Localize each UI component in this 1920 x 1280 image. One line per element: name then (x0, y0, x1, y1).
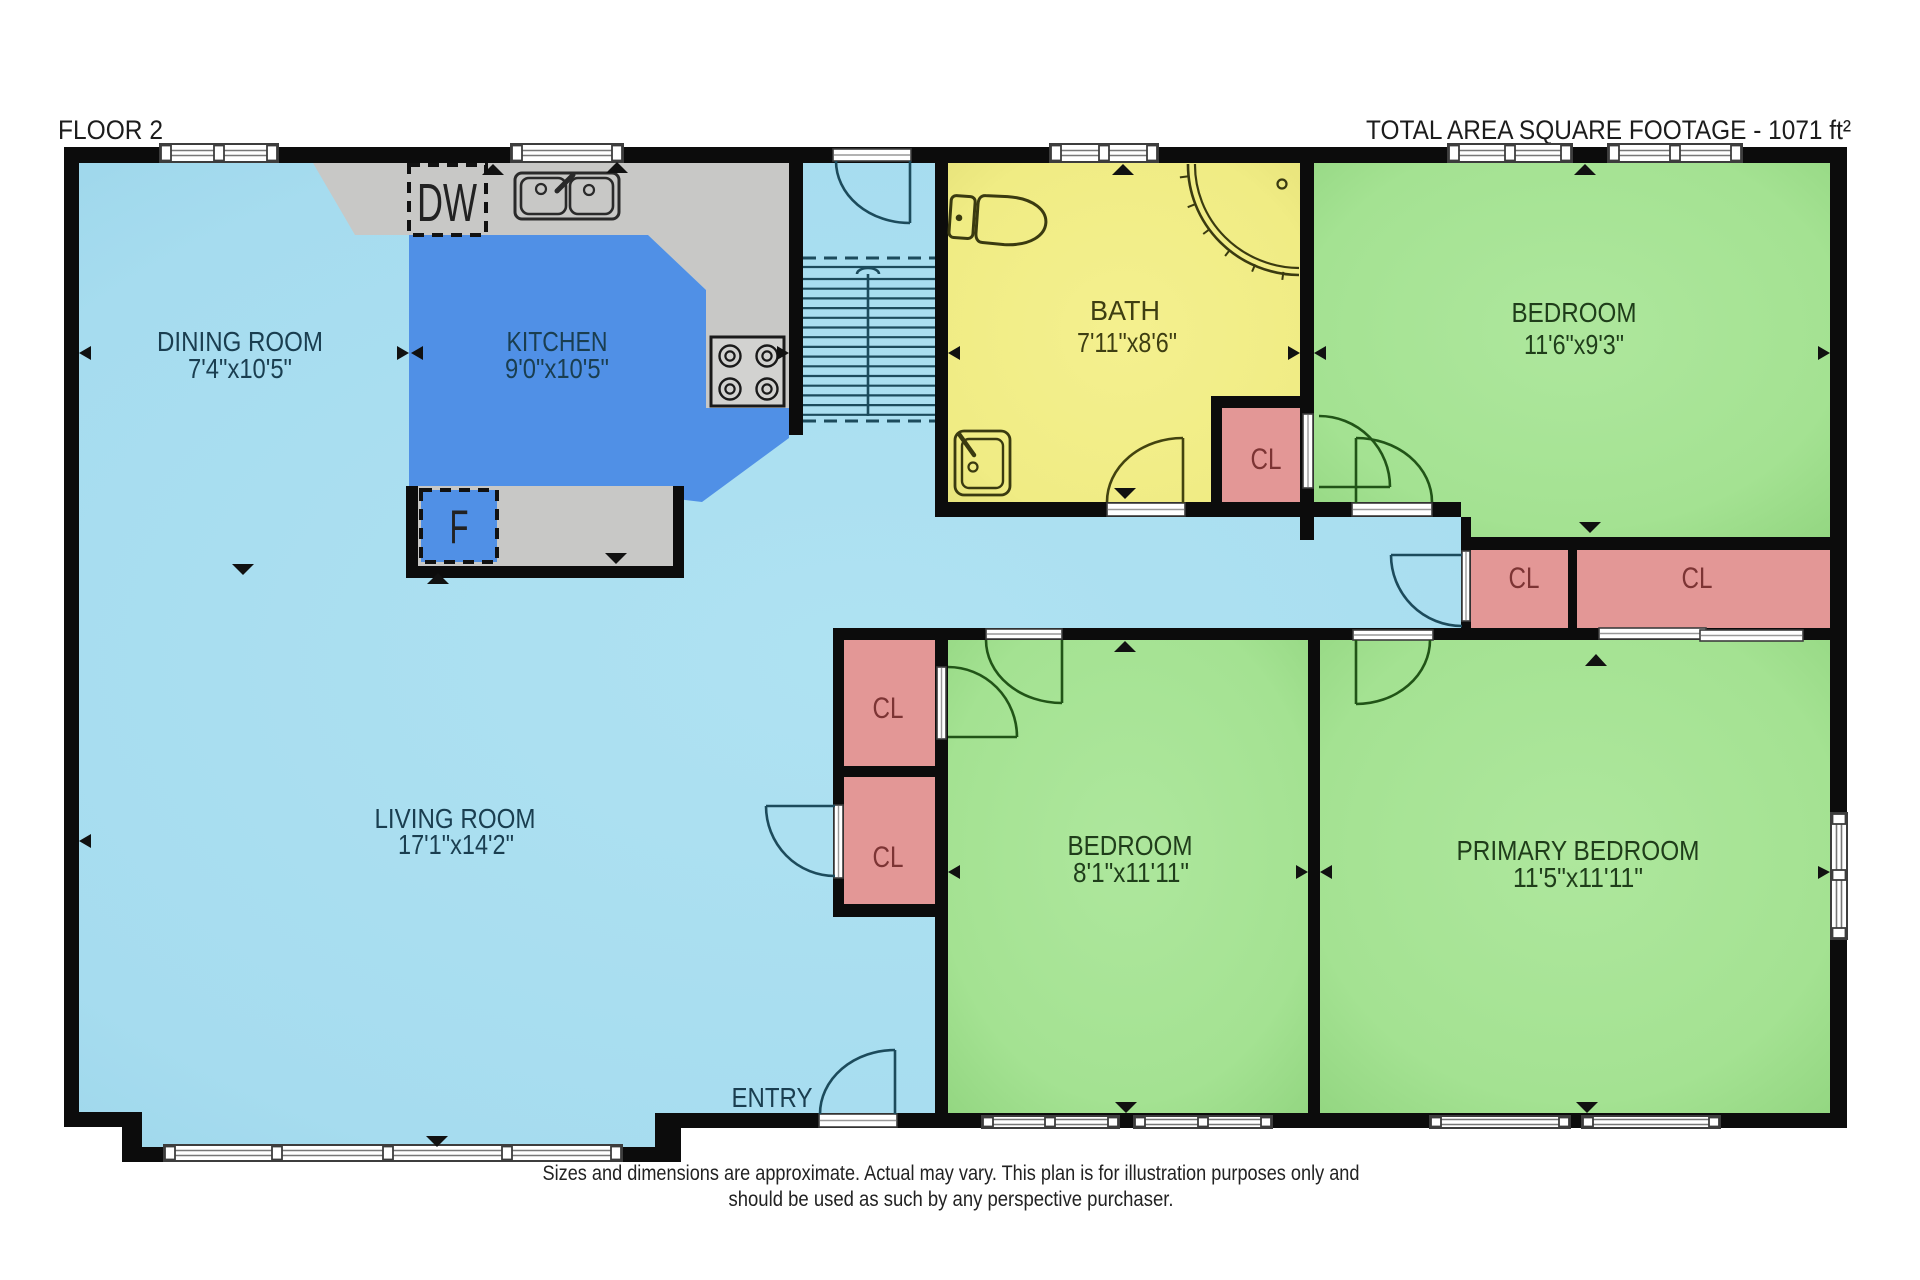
svg-text:BATH: BATH (1090, 295, 1160, 326)
svg-text:CL: CL (1682, 562, 1713, 595)
svg-text:CL: CL (873, 841, 904, 874)
svg-text:7'4"x10'5": 7'4"x10'5" (188, 353, 292, 384)
svg-text:8'1"x11'11": 8'1"x11'11" (1073, 857, 1189, 888)
svg-text:F: F (450, 500, 469, 553)
svg-text:BEDROOM: BEDROOM (1512, 297, 1637, 328)
svg-text:11'5"x11'11": 11'5"x11'11" (1513, 862, 1643, 893)
svg-text:TOTAL AREA SQUARE FOOTAGE - 10: TOTAL AREA SQUARE FOOTAGE - 1071 ft² (1366, 115, 1851, 145)
svg-text:17'1"x14'2": 17'1"x14'2" (398, 829, 514, 860)
svg-text:CL: CL (1251, 443, 1282, 476)
svg-text:11'6"x9'3": 11'6"x9'3" (1524, 329, 1624, 360)
svg-text:ENTRY: ENTRY (732, 1082, 813, 1113)
svg-text:Sizes and dimensions are appro: Sizes and dimensions are approximate. Ac… (543, 1162, 1360, 1185)
svg-text:7'11"x8'6": 7'11"x8'6" (1077, 327, 1177, 358)
svg-text:CL: CL (873, 692, 904, 725)
svg-text:9'0"x10'5": 9'0"x10'5" (505, 353, 609, 384)
svg-text:should be used as such by any: should be used as such by any perspectiv… (729, 1188, 1174, 1211)
svg-text:DW: DW (417, 173, 477, 233)
svg-text:FLOOR 2: FLOOR 2 (58, 115, 163, 145)
svg-text:CL: CL (1509, 562, 1540, 595)
